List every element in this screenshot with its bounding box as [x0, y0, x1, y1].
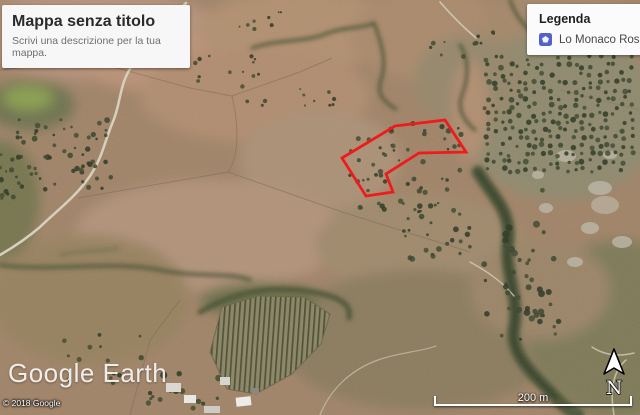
north-letter: N — [606, 377, 623, 399]
google-earth-viewport: Mappa senza titolo Scrivi una descrizion… — [0, 0, 640, 415]
copyright-notice: © 2018 Google — [3, 398, 60, 408]
north-indicator[interactable]: N — [599, 347, 629, 399]
legend-item-lo-monaco-rosa[interactable]: Lo Monaco Rosa — [539, 33, 639, 46]
google-earth-watermark: Google Earth — [8, 358, 167, 389]
legend-card: Legenda Lo Monaco Rosa — [527, 4, 640, 55]
legend-item-label: Lo Monaco Rosa — [559, 34, 640, 46]
map-title: Mappa senza titolo — [12, 12, 180, 31]
legend-title: Legenda — [539, 12, 639, 26]
map-title-card: Mappa senza titolo Scrivi una descrizion… — [2, 5, 190, 68]
map-description-placeholder: Scrivi una descrizione per la tua mappa. — [12, 35, 180, 59]
polygon-layer-icon — [539, 33, 552, 46]
north-arrow-icon — [604, 349, 624, 374]
